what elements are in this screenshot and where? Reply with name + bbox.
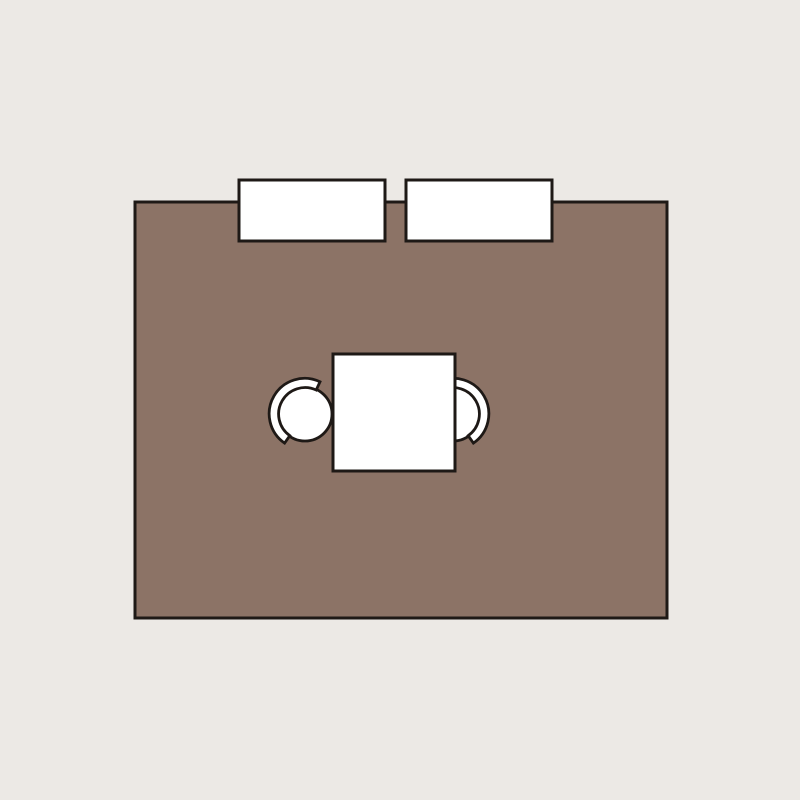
cabinet-right[interactable]: [406, 180, 552, 241]
dining-table[interactable]: [333, 354, 455, 471]
cabinet-left[interactable]: [239, 180, 385, 241]
floor-plan-canvas: [0, 0, 800, 800]
